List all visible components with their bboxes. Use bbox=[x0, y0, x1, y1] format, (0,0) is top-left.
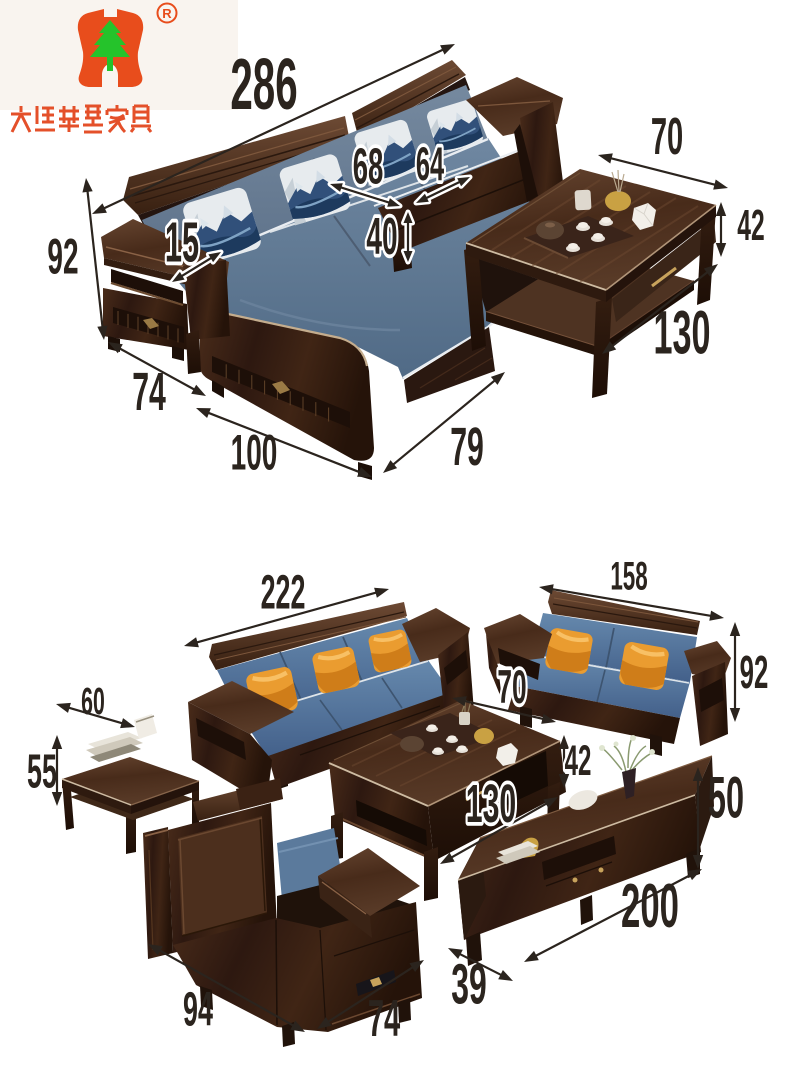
svg-text:130: 130 bbox=[654, 299, 711, 367]
svg-text:100: 100 bbox=[231, 424, 278, 481]
svg-text:79: 79 bbox=[450, 417, 484, 477]
svg-text:68: 68 bbox=[353, 137, 384, 194]
svg-text:64: 64 bbox=[416, 139, 444, 191]
svg-text:92: 92 bbox=[47, 228, 78, 285]
svg-text:222: 222 bbox=[261, 566, 306, 619]
svg-text:94: 94 bbox=[183, 983, 213, 1036]
svg-text:200: 200 bbox=[621, 871, 679, 940]
svg-text:130: 130 bbox=[466, 774, 516, 834]
svg-text:74: 74 bbox=[132, 362, 166, 422]
svg-text:40: 40 bbox=[366, 207, 397, 265]
svg-text:55: 55 bbox=[27, 745, 57, 798]
svg-text:70: 70 bbox=[651, 107, 683, 165]
svg-text:74: 74 bbox=[368, 989, 401, 1047]
svg-text:60: 60 bbox=[81, 679, 105, 722]
svg-text:92: 92 bbox=[740, 646, 769, 698]
svg-text:158: 158 bbox=[610, 554, 647, 598]
svg-text:70: 70 bbox=[497, 662, 526, 714]
svg-text:39: 39 bbox=[451, 952, 486, 1016]
svg-text:286: 286 bbox=[230, 45, 297, 125]
svg-text:42: 42 bbox=[737, 200, 764, 249]
svg-text:50: 50 bbox=[708, 764, 744, 829]
svg-text:R: R bbox=[162, 6, 172, 21]
svg-text:15: 15 bbox=[165, 210, 199, 273]
svg-text:42: 42 bbox=[565, 737, 592, 785]
